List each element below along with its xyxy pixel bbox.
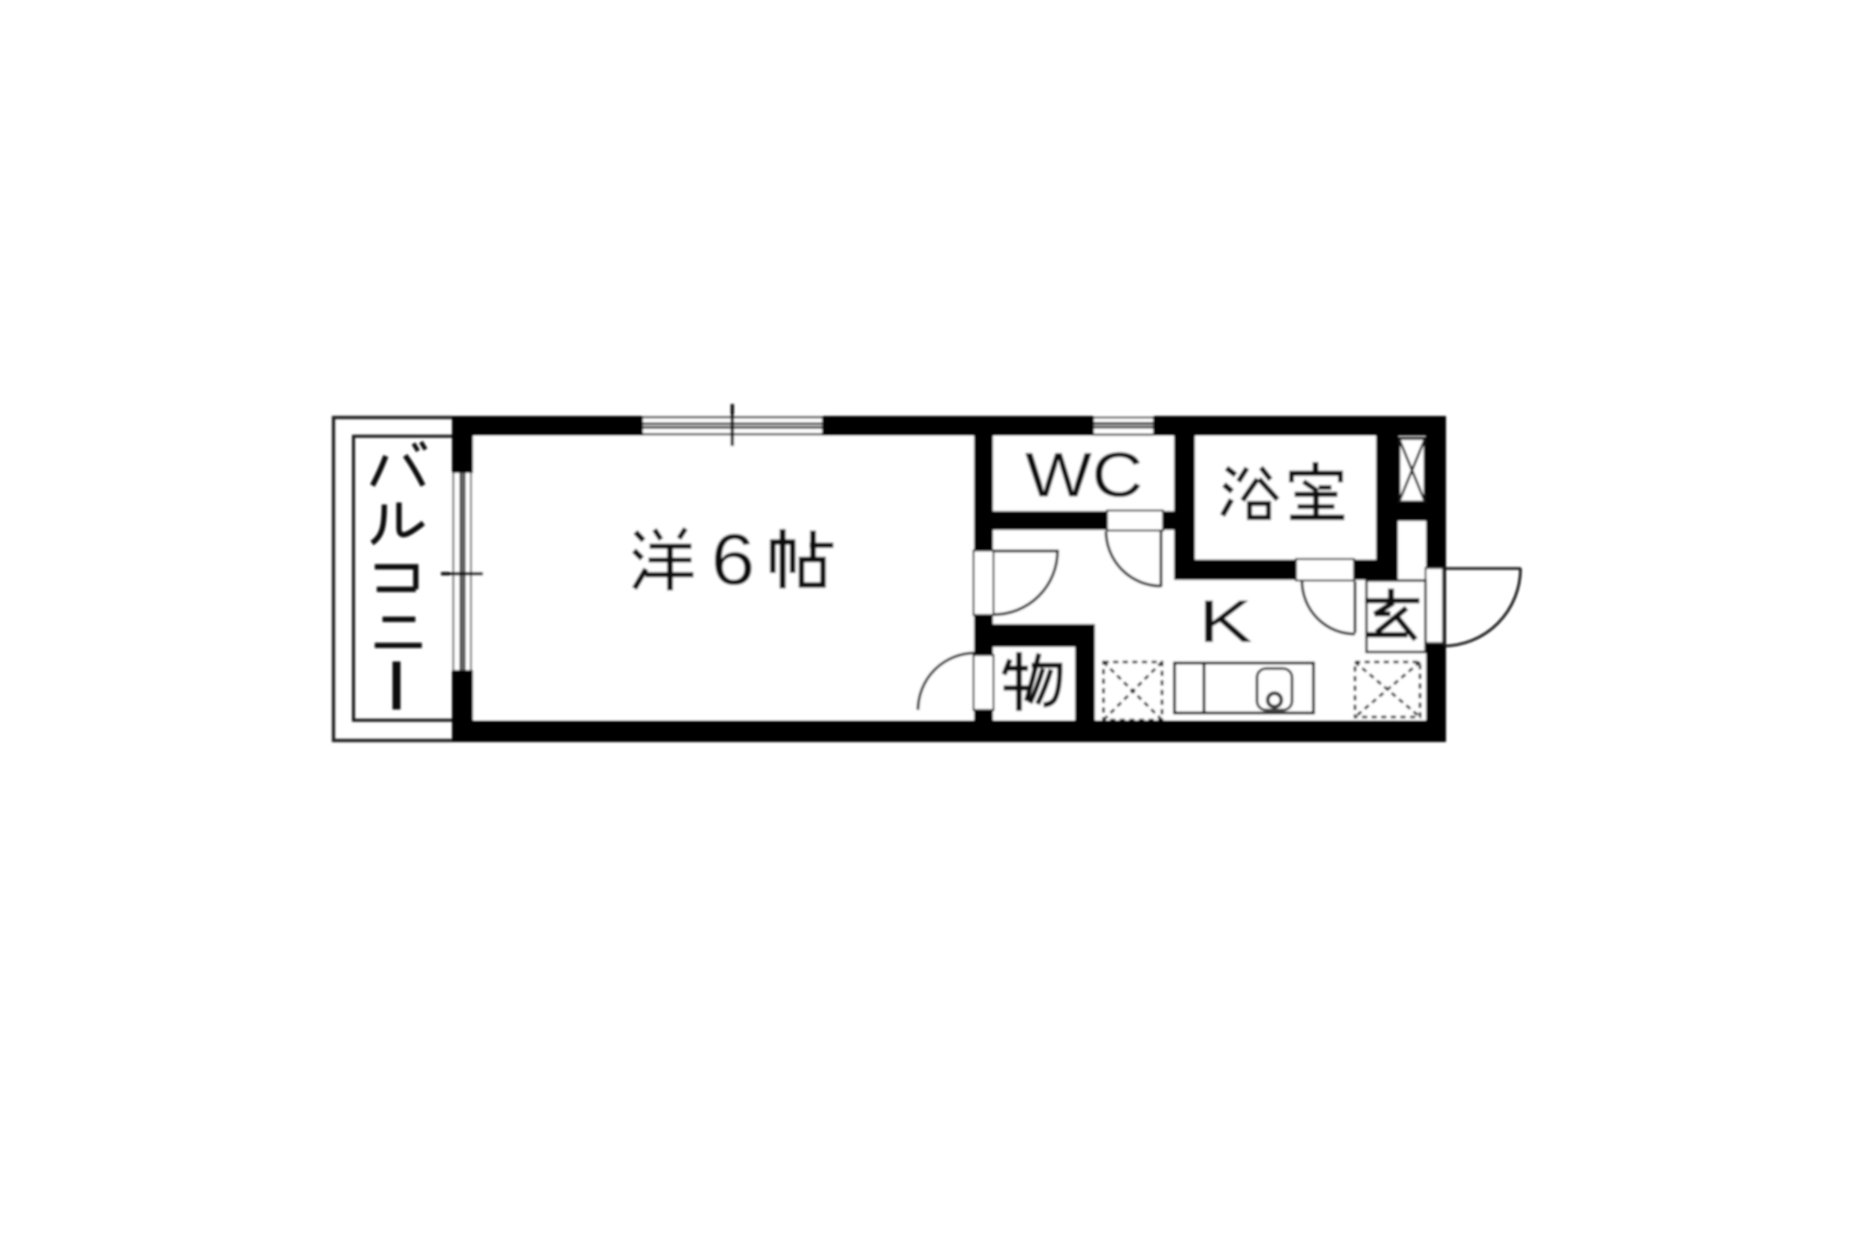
svg-text:WC: WC	[1025, 441, 1143, 511]
svg-text:K: K	[1199, 588, 1253, 655]
svg-text:6: 6	[711, 520, 755, 601]
